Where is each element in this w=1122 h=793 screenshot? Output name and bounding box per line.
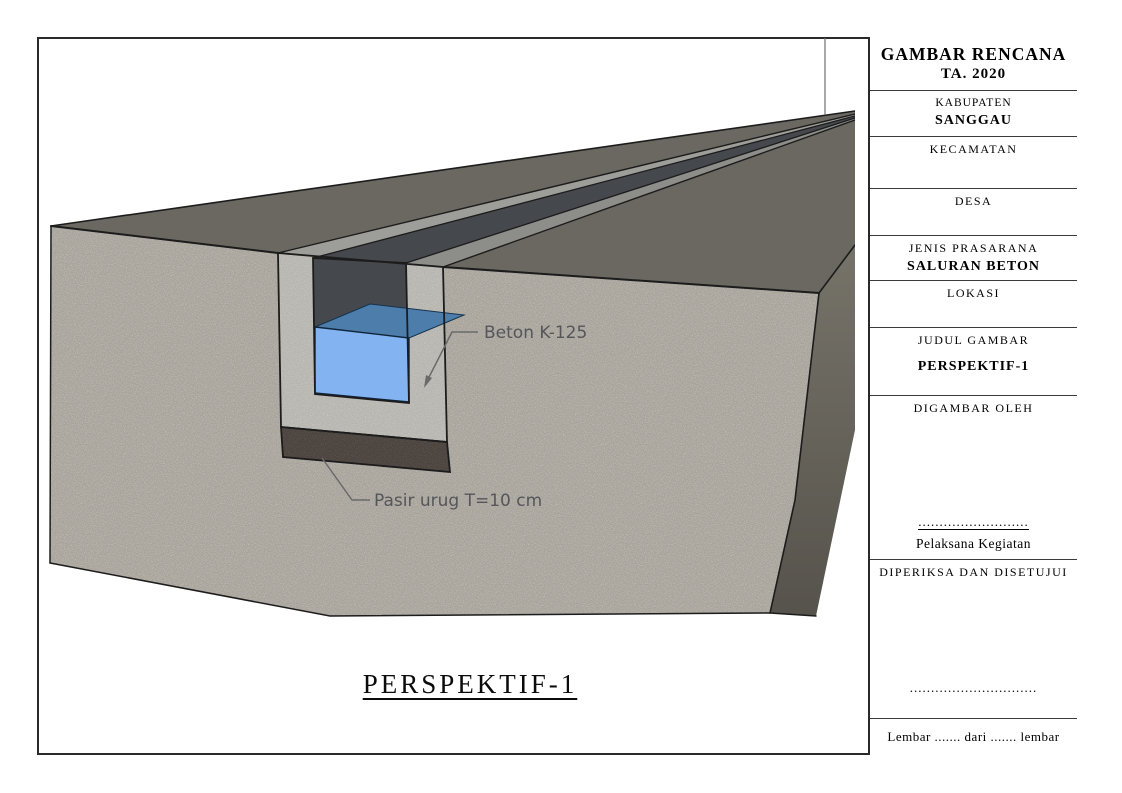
titleblock-row-kecamatan: KECAMATAN (870, 137, 1077, 189)
titleblock-row-lembar: Lembar ....... dari ....... lembar (870, 719, 1077, 755)
lembar-text: Lembar ....... dari ....... lembar (887, 729, 1059, 745)
titleblock-row-desa: DESA (870, 189, 1077, 236)
jenis-prasarana-label: JENIS PRASARANA (909, 241, 1039, 256)
desa-label: DESA (955, 194, 992, 209)
titleblock-row-jenis-prasarana: JENIS PRASARANA SALURAN BETON (870, 236, 1077, 281)
lokasi-label: LOKASI (947, 286, 1000, 301)
titleblock-row-judul-gambar: JUDUL GAMBAR PERSPEKTIF-1 (870, 328, 1077, 396)
drawing-sheet: Beton K-125 Pasir urug T=10 cm PERSPEKTI… (0, 0, 1122, 793)
jenis-prasarana-value: SALURAN BETON (907, 259, 1040, 275)
titleblock-row-digambar-oleh: DIGAMBAR OLEH ..........................… (870, 396, 1077, 560)
titleblock-title: GAMBAR RENCANA (881, 44, 1067, 65)
judul-gambar-label: JUDUL GAMBAR (918, 333, 1029, 348)
diperiksa-label: DIPERIKSA DAN DISETUJUI (879, 565, 1068, 580)
label-pasir: Pasir urug T=10 cm (374, 491, 542, 511)
titleblock-row-lokasi: LOKASI (870, 281, 1077, 328)
kecamatan-label: KECAMATAN (930, 142, 1018, 157)
diperiksa-signature-line: .............................. (910, 681, 1038, 694)
titleblock-row-kabupaten: KABUPATEN SANGGAU (870, 91, 1077, 137)
titleblock-header: GAMBAR RENCANA TA. 2020 (870, 37, 1077, 91)
digambar-signature-line: .......................... (918, 515, 1029, 530)
titleblock-row-diperiksa: DIPERIKSA DAN DISETUJUI ................… (870, 560, 1077, 719)
digambar-oleh-label: DIGAMBAR OLEH (914, 401, 1034, 416)
title-block: GAMBAR RENCANA TA. 2020 KABUPATEN SANGGA… (868, 37, 1077, 755)
pelaksana-kegiatan-caption: Pelaksana Kegiatan (916, 536, 1031, 552)
block-left-edge (50, 226, 51, 563)
titleblock-year: TA. 2020 (941, 66, 1006, 83)
label-beton: Beton K-125 (484, 323, 587, 343)
perspective-drawing: Beton K-125 Pasir urug T=10 cm (37, 37, 855, 755)
water-front-face (315, 327, 409, 402)
view-title: PERSPEKTIF-1 (352, 669, 588, 700)
judul-gambar-value: PERSPEKTIF-1 (918, 359, 1030, 375)
kabupaten-label: KABUPATEN (935, 96, 1011, 110)
kabupaten-value: SANGGAU (935, 113, 1012, 129)
